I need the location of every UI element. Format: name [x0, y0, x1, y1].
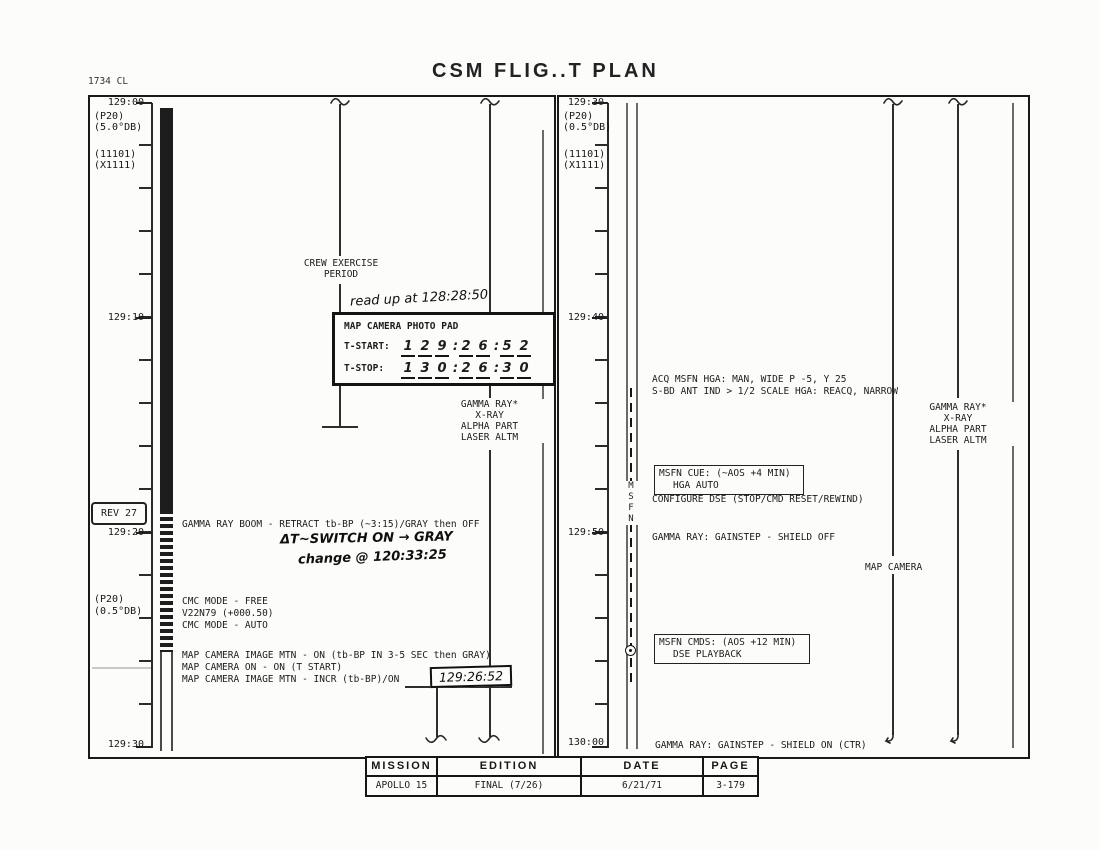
handwritten-switch-note: ΔT~SWITCH ON → GRAY	[280, 529, 453, 547]
instrument-stack-right: GAMMA RAY* X-RAY ALPHA PART LASER ALTM	[900, 402, 1016, 446]
time-label: 129:10	[90, 312, 144, 324]
digit-slot: 2	[418, 339, 432, 357]
digit-slot: 0	[435, 361, 449, 379]
footer-header-cell: DATE	[581, 757, 703, 776]
right-tick-strip	[595, 103, 607, 748]
photo-pad-title: MAP CAMERA PHOTO PAD	[344, 321, 458, 332]
cmc-mode-line: CMC MODE - AUTO	[182, 620, 268, 632]
activity-bar-hollow	[160, 652, 173, 751]
corner-code: 1734 CL	[88, 76, 128, 87]
digit-slot: 3	[500, 361, 514, 379]
t-stop-label: T-STOP:	[344, 363, 384, 374]
instrument-stack-left: GAMMA RAY* X-RAY ALPHA PART LASER ALTM	[432, 399, 547, 443]
code-label: (P20)	[94, 594, 124, 606]
map-camera-step-line: MAP CAMERA IMAGE MTN - INCR (tb-BP)/ON	[182, 674, 399, 686]
footer-header-cell: MISSION	[366, 757, 437, 776]
colon-slot: :	[452, 361, 459, 377]
gamma-gainstep-off-line: GAMMA RAY: GAINSTEP - SHIELD OFF	[652, 532, 835, 544]
digit-slot: 1	[401, 361, 415, 379]
msfn-cue-line: MSFN CUE: (~AOS +4 MIN)	[659, 468, 799, 480]
configure-dse-line: CONFIGURE DSE (STOP/CMD RESET/REWIND)	[652, 494, 864, 506]
digit-slot: 5	[500, 339, 514, 357]
time-label: 130:00	[560, 737, 604, 749]
thin-bar-line	[636, 103, 638, 749]
code-label: (X1111)	[94, 160, 136, 172]
t-stop-digits: 130:26:30	[401, 357, 534, 379]
time-label: 129:00	[90, 97, 144, 109]
footer-header-cell: PAGE	[703, 757, 758, 776]
colon-slot: :	[493, 361, 500, 377]
crew-exercise-label: CREW EXERCISE PERIOD	[285, 258, 397, 280]
digit-slot: 2	[459, 361, 473, 379]
digit-slot: 2	[517, 339, 531, 357]
t-start-digits: 129:26:52	[401, 335, 534, 357]
digit-slot: 6	[476, 361, 490, 379]
page-title: CSM FLIG..T PLAN	[432, 60, 659, 83]
incr-time-drop-line	[436, 687, 438, 737]
msfn-cmds-line: MSFN CMDS: (AOS +12 MIN)	[659, 637, 805, 649]
acq-msfn-line: ACQ MSFN HGA: MAN, WIDE P -5, Y 25	[652, 374, 846, 386]
gamma-ray-boom-line: GAMMA RAY BOOM - RETRACT tb-BP (~3:15)/G…	[182, 519, 479, 531]
digit-slot: 2	[459, 339, 473, 357]
digit-slot: 6	[476, 339, 490, 357]
event-line-map-camera	[892, 104, 894, 556]
event-line-instruments-right	[957, 104, 959, 398]
time-label: 129:40	[560, 312, 604, 324]
handwritten-incr-time: 129:26:52	[430, 665, 513, 688]
map-camera-step-line: MAP CAMERA ON - ON (T START)	[182, 662, 342, 674]
event-line-crew-exercise	[339, 104, 341, 256]
event-line-instruments	[489, 450, 491, 737]
footer-header-cell: EDITION	[437, 757, 581, 776]
cmc-mode-line: CMC MODE - FREE	[182, 596, 268, 608]
footer-value-cell: FINAL (7/26)	[437, 776, 581, 796]
circle-dot-marker-icon	[625, 645, 636, 656]
footer-value-cell: APOLLO 15	[366, 776, 437, 796]
footer-value-row: APOLLO 15 FINAL (7/26) 6/21/71 3-179	[366, 776, 758, 796]
event-line-map-camera	[892, 574, 894, 735]
code-label: (X1111)	[563, 160, 605, 172]
map-camera-step-line: MAP CAMERA IMAGE MTN - ON (tb-BP IN 3-5 …	[182, 650, 491, 662]
event-line-end-cap	[322, 426, 358, 428]
time-label: 129:30	[90, 739, 144, 751]
sband-ant-line: S-BD ANT IND > 1/2 SCALE HGA: REACQ, NAR…	[652, 386, 898, 398]
time-label: 129:20	[90, 527, 144, 539]
dse-playback-line: DSE PLAYBACK	[659, 649, 805, 661]
hga-auto-line: HGA AUTO	[659, 480, 799, 492]
time-label: 129:30	[560, 97, 604, 109]
gamma-gainstep-on-line: GAMMA RAY: GAINSTEP - SHIELD ON (CTR)	[655, 740, 867, 752]
footer-header-row: MISSION EDITION DATE PAGE	[366, 757, 758, 776]
digit-slot: 0	[517, 361, 531, 379]
colon-slot: :	[493, 339, 500, 355]
footer-value-cell: 6/21/71	[581, 776, 703, 796]
left-tick-strip	[139, 103, 151, 748]
code-label: (5.0°DB)	[94, 122, 142, 134]
axis-cross-line	[92, 667, 151, 669]
rev-badge: REV 27	[91, 502, 147, 525]
left-time-axis	[151, 103, 153, 748]
msfn-coverage-dashed-line	[630, 388, 632, 688]
msfn-cue-box: MSFN CUE: (~AOS +4 MIN) HGA AUTO	[654, 465, 804, 495]
code-label: (0.5°DB)	[563, 122, 611, 134]
time-label: 129:50	[560, 527, 604, 539]
msfn-vertical-label: M S F N	[624, 481, 638, 525]
footer-table: MISSION EDITION DATE PAGE APOLLO 15 FINA…	[365, 756, 759, 797]
event-line-instruments-right	[957, 450, 959, 735]
right-time-axis	[607, 103, 609, 748]
digit-slot: 9	[435, 339, 449, 357]
map-camera-label: MAP CAMERA	[862, 562, 925, 574]
cmc-mode-line: V22N79 (+000.50)	[182, 608, 274, 620]
t-start-label: T-START:	[344, 341, 390, 352]
footer-value-cell: 3-179	[703, 776, 758, 796]
flight-plan-page: 1734 CL CSM FLIG..T PLAN 129:00 (P20) (5…	[0, 0, 1100, 850]
msfn-cmds-box: MSFN CMDS: (AOS +12 MIN) DSE PLAYBACK	[654, 634, 810, 664]
activity-bar-solid	[160, 108, 173, 510]
activity-bar-striped	[160, 510, 173, 652]
digit-slot: 3	[418, 361, 432, 379]
map-camera-photo-pad: MAP CAMERA PHOTO PAD T-START: 129:26:52 …	[332, 312, 556, 386]
digit-slot: 1	[401, 339, 415, 357]
colon-slot: :	[452, 339, 459, 355]
code-label: (0.5°DB)	[94, 606, 142, 618]
